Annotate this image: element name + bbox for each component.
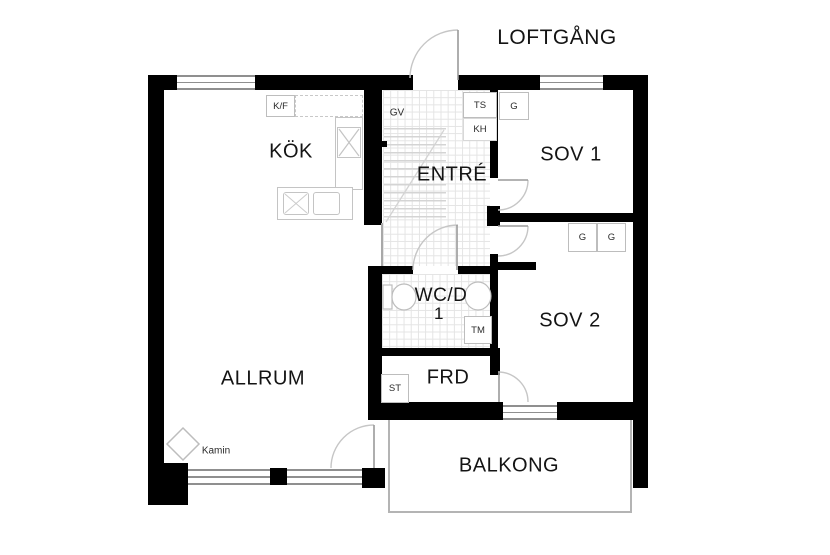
- window-kok: [177, 75, 255, 90]
- fridge-freezer-label: K/F: [273, 101, 288, 112]
- label-sov2: SOV 2: [539, 310, 600, 333]
- closet-sov1-label: G: [510, 101, 517, 112]
- window-allrum-east: [287, 469, 362, 485]
- wall-top-a: [148, 75, 178, 90]
- label-gv: GV: [390, 108, 404, 119]
- balcony-door-arc: [331, 425, 374, 468]
- label-sov1: SOV 1: [540, 144, 601, 167]
- closet-sov2-right-box: G: [597, 223, 626, 252]
- washing-machine-label: TM: [471, 325, 485, 336]
- label-entre: ENTRÉ: [417, 164, 487, 187]
- label-kamin: Kamin: [202, 446, 230, 457]
- label-allrum: ALLRUM: [221, 368, 305, 391]
- wall-corner-southwest: [148, 463, 188, 505]
- label-balkong: BALKONG: [459, 455, 559, 478]
- closet-sov2-left-label: G: [579, 232, 586, 243]
- floor-plan: K/F TS KH G G G TM ST: [0, 0, 830, 555]
- wall-allrum-wcd: [368, 266, 382, 402]
- wall-balcony-top-a: [368, 402, 503, 420]
- label-loftgang: LOFTGÅNG: [497, 26, 617, 50]
- front-door-arc: [410, 30, 458, 78]
- fireplace-shape: [167, 428, 199, 460]
- closet-sov2-left-box: G: [568, 223, 597, 252]
- wall-sov1-sov2: [487, 213, 633, 222]
- wall-frd-right: [490, 348, 500, 375]
- stove: [337, 127, 361, 158]
- wall-exterior-right: [633, 75, 648, 488]
- frd-door-arc: [498, 372, 528, 402]
- window-sov1: [540, 75, 603, 90]
- dishwasher-basin: [283, 192, 309, 215]
- fridge-freezer-box: K/F: [266, 95, 295, 117]
- drying-cabinet-label: TS: [474, 100, 486, 111]
- window-allrum-west: [188, 469, 270, 485]
- floor-threshold-line: [381, 223, 383, 266]
- wall-top-b: [255, 75, 413, 90]
- cleaning-closet-label: ST: [389, 383, 401, 394]
- label-kok: KÖK: [269, 141, 313, 164]
- washing-machine-box: TM: [464, 316, 492, 344]
- wall-hall-sov2-stub: [496, 262, 536, 270]
- drying-cabinet-box: TS: [463, 92, 497, 118]
- wall-wcd-bottom: [378, 348, 493, 356]
- cleaning-closet-box: ST: [381, 374, 409, 403]
- wall-wcd-top-west: [368, 266, 413, 274]
- wall-top-c: [458, 75, 541, 90]
- coat-rack-label: KH: [473, 124, 486, 135]
- wall-kok-entre: [364, 85, 382, 225]
- wall-balcony-top-b: [557, 402, 633, 420]
- sov1-door-arc: [498, 180, 528, 210]
- wall-exterior-left: [148, 75, 164, 470]
- closet-sov2-right-label: G: [608, 232, 615, 243]
- closet-sov1-box: G: [499, 92, 529, 120]
- sink-basin: [313, 192, 340, 215]
- window-sov2-balcony: [503, 405, 557, 420]
- label-frd: FRD: [427, 367, 470, 390]
- kitchen-upper-cabinet: [295, 95, 363, 117]
- sov2-door-arc: [498, 226, 528, 256]
- wall-pier-south-1: [270, 468, 287, 485]
- wall-nub-entre: [381, 141, 387, 147]
- wall-pier-south-2: [362, 468, 385, 488]
- coat-rack-box: KH: [463, 118, 497, 141]
- label-wcd-number: 1: [434, 304, 444, 324]
